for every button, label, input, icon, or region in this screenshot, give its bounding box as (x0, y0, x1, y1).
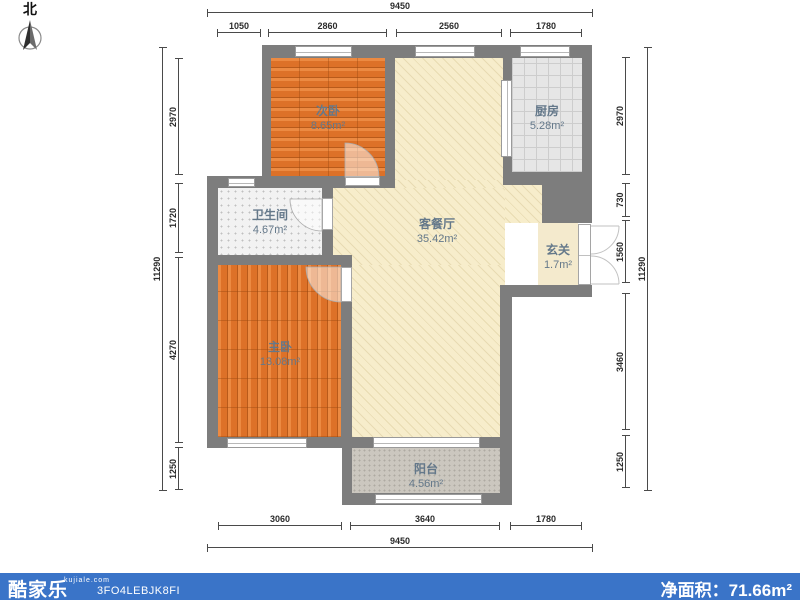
room-name: 卫生间 (252, 208, 288, 223)
net-area-value: 71.66m² (729, 581, 792, 600)
label-living-dining: 客餐厅 35.42m² (417, 217, 457, 246)
room-name: 客餐厅 (417, 217, 457, 232)
kujiale-logo: 酷家乐 (8, 575, 68, 602)
room-name: 主卧 (260, 340, 300, 355)
room-area: 35.42m² (417, 232, 457, 246)
dim-top-seg3: 2560 (396, 32, 502, 33)
dim-bottom-total: 9450 (207, 547, 593, 548)
dim-top-seg1: 1050 (217, 32, 261, 33)
room-area: 13.08m² (260, 355, 300, 369)
compass-north-label: 北 (8, 2, 52, 16)
room-name: 玄关 (544, 243, 572, 258)
room-area: 8.65m² (311, 119, 345, 133)
wall-entry-recess (542, 185, 592, 223)
net-area: 净面积：71.66m² (661, 576, 792, 601)
window-bedroom2-top (295, 46, 352, 57)
dim-left-seg3: 4270 (178, 257, 179, 443)
label-master-bedroom: 主卧 13.08m² (260, 340, 300, 369)
window-balcony-bottom (375, 494, 482, 504)
dim-bottom-seg2: 3640 (350, 525, 500, 526)
room-area: 4.56m² (409, 477, 443, 491)
door-leaf-bathroom (322, 198, 333, 230)
floor-living-dining (352, 265, 505, 445)
net-area-label: 净面积： (661, 581, 729, 600)
floorplan-canvas: 次卧 8.65m² 厨房 5.28m² 卫生间 4.67m² 客餐厅 35.42… (0, 0, 800, 600)
window-master-bottom (227, 438, 307, 448)
label-entryway: 玄关 1.7m² (544, 243, 572, 272)
room-area: 1.7m² (544, 258, 572, 272)
dim-right-seg5: 1250 (625, 435, 626, 488)
door-leaf-bedroom2 (345, 177, 380, 186)
floor-living-dining (395, 58, 505, 188)
wall-entry-bottom (500, 285, 592, 297)
floorplan-code: 3FO4LEBJK8FI (97, 585, 180, 597)
room-area: 5.28m² (530, 119, 564, 133)
dim-left-total: 11290 (162, 47, 163, 491)
dim-top-total: 9450 (207, 12, 593, 13)
dim-right-seg1: 2970 (625, 57, 626, 175)
label-balcony: 阳台 4.56m² (409, 462, 443, 491)
dim-right-seg2: 730 (625, 183, 626, 217)
room-name: 次卧 (311, 104, 345, 119)
room-name: 厨房 (530, 104, 564, 119)
compass-north-icon: 北 (8, 2, 52, 54)
sliding-door-kitchen (501, 80, 512, 157)
dim-top-seg2: 2860 (268, 32, 387, 33)
window-kitchen-top (520, 46, 570, 57)
room-name: 阳台 (409, 462, 443, 477)
window-bathroom (228, 178, 255, 187)
door-leaf-entry (578, 224, 591, 285)
footer-website: kujiale.com (64, 577, 110, 584)
dim-right-seg4: 3460 (625, 293, 626, 430)
wall-right-top (582, 45, 592, 185)
wall-left-exterior (207, 180, 218, 448)
door-leaf-master (341, 267, 352, 302)
dim-right-seg3: 1560 (625, 220, 626, 283)
dim-left-seg1: 2970 (178, 58, 179, 175)
wall-right-lower (500, 285, 512, 448)
label-kitchen: 厨房 5.28m² (530, 104, 564, 133)
label-bathroom: 卫生间 4.67m² (252, 208, 288, 237)
dim-right-total: 11290 (647, 47, 648, 491)
dim-bottom-seg1: 3060 (218, 525, 342, 526)
dim-top-seg4: 1780 (510, 32, 582, 33)
wall-bedroom2-right (385, 45, 395, 188)
wall-balcony-right (500, 437, 512, 505)
footer-bar: 酷家乐 kujiale.com 3FO4LEBJK8FI 净面积：71.66m² (0, 573, 800, 600)
dim-left-seg2: 1720 (178, 183, 179, 253)
dim-left-seg4: 1250 (178, 447, 179, 490)
wall-bedroom2-left (262, 45, 271, 180)
sliding-door-balcony (373, 437, 480, 448)
label-secondary-bedroom: 次卧 8.65m² (311, 104, 345, 133)
room-area: 4.67m² (252, 223, 288, 237)
wall-kitchen-bottom (503, 172, 592, 185)
compass-needle-icon (8, 16, 52, 56)
window-living-top (415, 46, 475, 57)
dim-bottom-seg3: 1780 (510, 525, 582, 526)
